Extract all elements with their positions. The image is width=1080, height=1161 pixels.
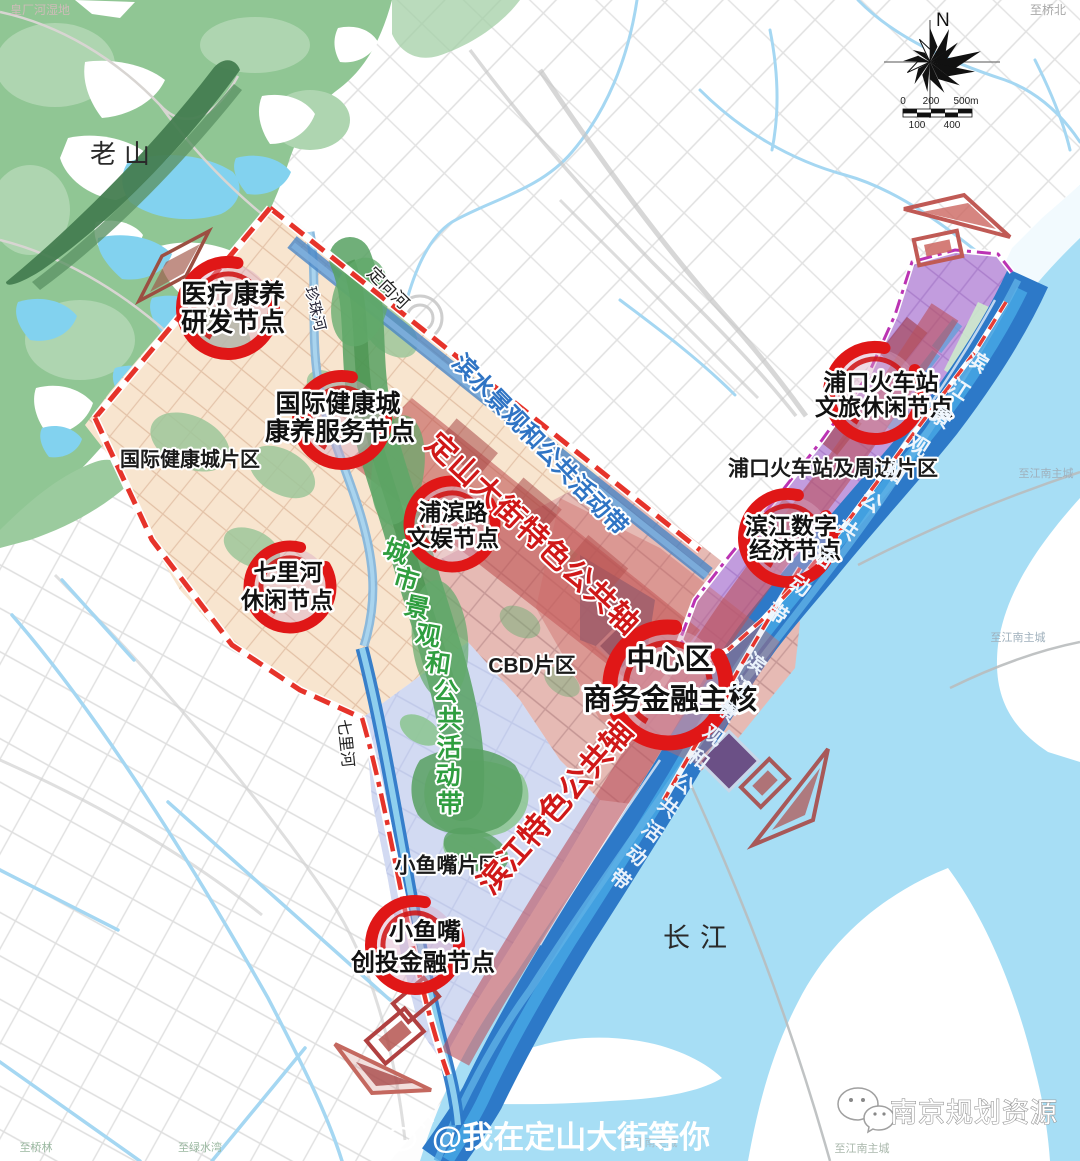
svg-text:200: 200 xyxy=(923,96,940,107)
svg-text:中心区: 中心区 xyxy=(626,643,713,676)
svg-text:CBD片区: CBD片区 xyxy=(488,655,576,678)
svg-text:医疗康养: 医疗康养 xyxy=(181,279,285,309)
svg-text:康养服务节点: 康养服务节点 xyxy=(265,417,415,446)
svg-text:至江南主城: 至江南主城 xyxy=(1019,467,1074,480)
svg-text:500m: 500m xyxy=(953,96,978,107)
svg-text:皇厂河湿地: 皇厂河湿地 xyxy=(10,2,70,17)
svg-text:国际健康城片区: 国际健康城片区 xyxy=(120,447,260,471)
svg-text:滨江数字: 滨江数字 xyxy=(745,513,837,539)
svg-text:活: 活 xyxy=(436,734,461,762)
svg-text:老山: 老山 xyxy=(90,139,158,169)
svg-text:小鱼嘴: 小鱼嘴 xyxy=(389,918,461,946)
svg-text:和: 和 xyxy=(424,648,453,679)
svg-text:文娱节点: 文娱节点 xyxy=(407,525,499,551)
svg-text:100: 100 xyxy=(909,120,926,131)
svg-text:观: 观 xyxy=(413,620,442,652)
svg-text:至江南主城: 至江南主城 xyxy=(991,631,1046,644)
svg-text:七里河: 七里河 xyxy=(254,559,323,585)
svg-text:休闲节点: 休闲节点 xyxy=(240,587,333,613)
svg-text:创投金融节点: 创投金融节点 xyxy=(350,949,495,977)
svg-text:至桥北: 至桥北 xyxy=(1030,3,1066,17)
svg-text:公: 公 xyxy=(432,677,459,707)
svg-text:动: 动 xyxy=(435,762,460,790)
svg-text:0: 0 xyxy=(900,96,906,107)
svg-text:至绿水湾: 至绿水湾 xyxy=(178,1140,222,1154)
svg-text:@我在定山大街等你: @我在定山大街等你 xyxy=(432,1120,710,1155)
svg-text:400: 400 xyxy=(944,120,961,131)
svg-text:浦口火车站: 浦口火车站 xyxy=(824,369,939,395)
svg-text:研发节点: 研发节点 xyxy=(181,307,285,337)
svg-text:南京规划资源: 南京规划资源 xyxy=(890,1098,1058,1128)
svg-text:国际健康城: 国际健康城 xyxy=(275,389,400,418)
svg-text:共: 共 xyxy=(437,706,462,734)
svg-text:长江: 长江 xyxy=(663,923,737,953)
svg-text:带: 带 xyxy=(437,790,462,818)
svg-text:至桥林: 至桥林 xyxy=(20,1140,53,1154)
svg-text:N: N xyxy=(936,10,950,31)
svg-text:至江南主城: 至江南主城 xyxy=(835,1142,890,1155)
